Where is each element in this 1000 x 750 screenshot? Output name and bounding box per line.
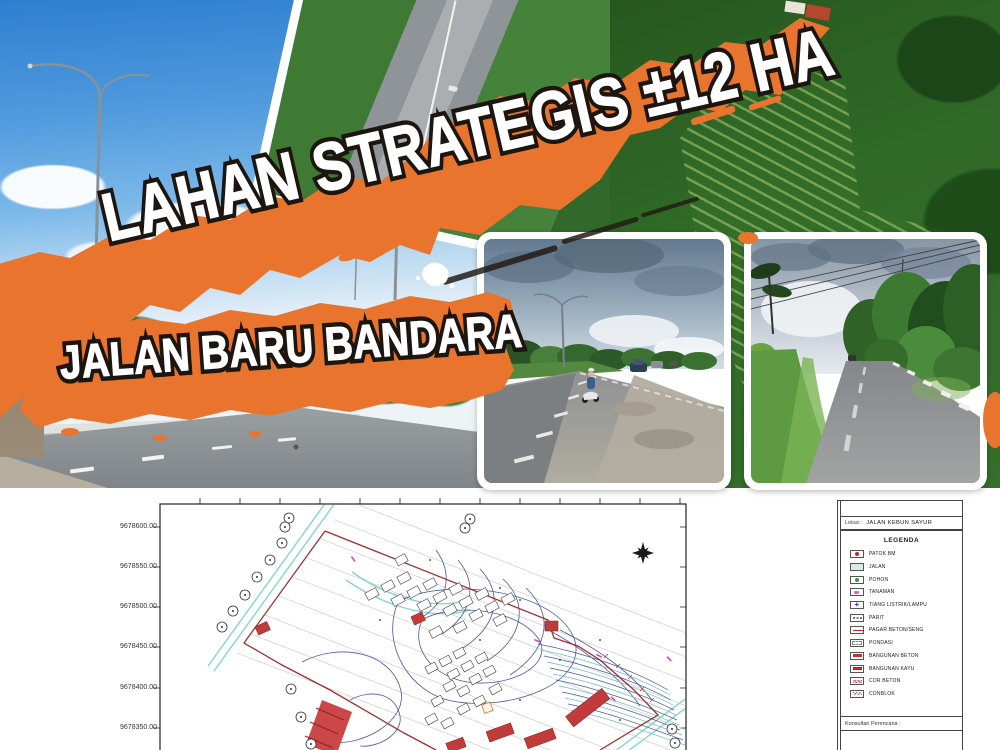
legend-item: +TIANG LISTRIK/LAMPU [841,599,962,612]
pohon-symbol-icon [850,576,864,584]
pondasi-symbol-icon [850,639,864,647]
legend-item: JALAN [841,561,962,574]
jalan-symbol-icon [850,563,864,571]
legend-item: TANAMAN [841,586,962,599]
photo-road-with-motorbike [484,239,724,483]
consultant-label: Konsultan Perencana : [845,721,901,727]
legend-item: BANGUNAN KAYU [841,662,962,675]
legend-item: PARIT [841,611,962,624]
y-axis-label: 9678450.00 [107,643,157,650]
map-title-block: Lokasi : JALAN KEBUN SAYUR LEGENDA PATOK… [837,500,963,750]
legend-item: COR BETON [841,675,962,688]
spot-elevation-dots [379,559,621,721]
legend-item: PONDASI [841,637,962,650]
y-axis-label: 9678500.00 [107,603,157,610]
axis-ticks-top [200,498,680,504]
location-label: Lokasi : [845,520,862,526]
site-plan-sheet: 9678600.00 9678550.00 9678500.00 9678450… [0,488,1000,750]
contour-lines [302,550,652,746]
pagar-beton-symbol-icon [850,626,864,634]
photo-card-road-greenery [744,232,987,490]
photo-road-with-trees [751,239,980,483]
consultant-row: Konsultan Perencana : [841,717,962,731]
y-axis-label: 9678600.00 [107,523,157,530]
legend-item: PATOK BM [841,548,962,561]
tiang-listrik-symbol-icon: + [850,601,864,609]
conblok-symbol-icon [850,690,864,698]
legend-item: PAGAR BETON/SENG [841,624,962,637]
land-sale-poster: 9678600.00 9678550.00 9678500.00 9678450… [0,0,1000,750]
y-axis-label: 9678350.00 [107,724,157,731]
building-cluster-upper [365,554,515,639]
location-row: Lokasi : JALAN KEBUN SAYUR [841,517,962,531]
legend-section: LEGENDA PATOK BM JALAN POHON TANAMAN +TI… [841,537,962,717]
legend-item: BANGUNAN BETON [841,650,962,663]
parit-symbol-icon [850,614,864,622]
photo-card-road-traffic [477,232,731,490]
map-frame [160,504,686,750]
compass-rose-icon [632,542,655,565]
y-axis-label: 9678400.00 [107,684,157,691]
legend-title: LEGENDA [841,537,962,544]
patok-bm-symbol-icon [850,550,864,558]
title-block-spacer [841,501,962,517]
legend-item: POHON [841,573,962,586]
survey-point-markers [217,513,680,749]
cor-beton-symbol-icon [850,677,864,685]
bangunan-kayu-symbol-icon [850,665,864,673]
legend-item: CONBLOK [841,688,962,701]
location-value: JALAN KEBUN SAYUR [866,520,932,526]
y-axis-label: 9678550.00 [107,563,157,570]
bangunan-beton-symbol-icon [850,652,864,660]
distant-car [848,355,856,361]
tanaman-symbol-icon [850,588,864,596]
